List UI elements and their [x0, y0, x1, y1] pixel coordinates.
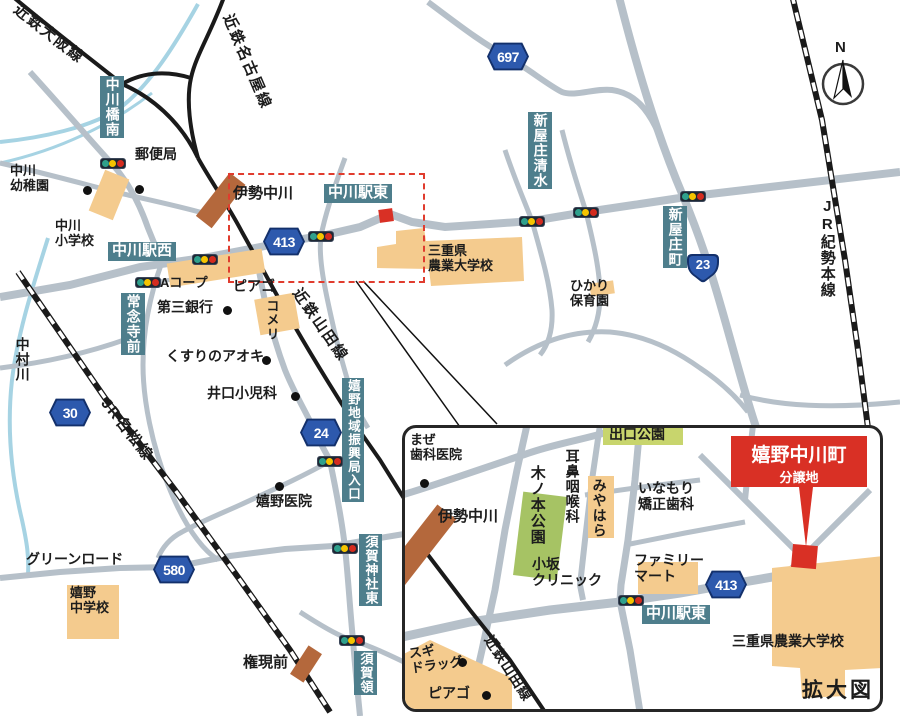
traffic-signal-icon [308, 231, 334, 242]
poi-dot-yochien [83, 186, 92, 195]
traffic-signal-icon [317, 456, 343, 467]
poi-mie-nogyo-daigakko: 三重県 農業大学校 [428, 244, 493, 273]
traffic-signal-icon [618, 595, 644, 606]
traffic-signal-icon [135, 277, 161, 288]
inset-poi-dot-sugi-drug [458, 658, 467, 667]
inset-poi-ise-nakagawa: 伊勢中川 [438, 509, 498, 526]
traffic-signal-icon [192, 254, 218, 265]
poi-piago: ピアゴ [233, 279, 275, 295]
inset-poi-dot-piago [482, 691, 491, 700]
sign-ureshino-chiiki-shinkokyoku-iriguchi: 嬉野地域振興局入口 [342, 378, 364, 502]
poi-nakagawa-shogakko: 中川 小学校 [55, 219, 94, 248]
inset-route-badge-413: 413 [705, 570, 747, 599]
inset-poi-mie-nogyo-daigakko: 三重県農業大学校 [732, 634, 844, 650]
inset-poi-inamori-kyosei-shika: いなもり 矯正歯科 [638, 481, 694, 512]
inset-poi-jibi-inkoka: 耳鼻咽喉科 [564, 449, 580, 524]
poi-iguchi-shonika: 井口小児科 [207, 386, 277, 402]
route-badge-580: 580 [153, 555, 195, 584]
poi-dot-yubinkyoku [135, 185, 144, 194]
map-canvas: 近鉄大阪線 近鉄名古屋線 近鉄山田線 JR名松線 JR紀勢本線 N 中川橋南 中… [0, 0, 900, 716]
route-badge-30: 30 [49, 398, 91, 427]
site-label-line2: 分譲地 [731, 467, 867, 486]
poi-dot-daisan-ginko [223, 306, 232, 315]
site-label-line1: 嬉野中川町 [731, 440, 867, 467]
rail-label-jr-kisei: JR紀勢本線 [818, 198, 835, 298]
poi-gongen-mae: 権現前 [243, 655, 288, 672]
poi-kusuri-no-aoki: くすりのアオキ [166, 349, 264, 365]
poi-green-road: グリーンロード [26, 552, 123, 568]
poi-ise-nakagawa: 伊勢中川 [233, 186, 293, 203]
poi-ureshino-chugakko: 嬉野 中学校 [70, 586, 109, 615]
inset-sign-nakagawa-eki-higashi: 中川駅東 [642, 605, 710, 624]
sign-shinyasho-shimizu: 新屋庄清水 [528, 112, 552, 189]
poi-komeri: コメリ [264, 299, 279, 341]
poi-hikari-hoikuen: ひかり 保育園 [570, 279, 609, 308]
poi-dot-kusuri-no-aoki [262, 356, 271, 365]
enlarged-map-inset: まぜ 歯科医院 伊勢中川 木ノ本公園 耳鼻咽喉科 みやはら 出口公園 いなもり … [402, 425, 883, 712]
sign-suga-ryo: 須賀領 [354, 651, 377, 695]
sign-suga-jinja-higashi: 須賀神社東 [359, 534, 382, 606]
compass-north-label: N [835, 40, 846, 57]
inset-poi-piago: ピアゴ [428, 686, 470, 702]
inset-poi-kinomoto-koen: 木ノ本公園 [528, 465, 545, 545]
traffic-signal-icon [100, 158, 126, 169]
route-badge-697: 697 [487, 42, 529, 71]
route-badge-413: 413 [263, 227, 305, 256]
poi-dot-ureshino-iin [275, 482, 284, 491]
sign-nakagawa-eki-higashi: 中川駅東 [324, 184, 392, 203]
svg-text:23: 23 [696, 257, 710, 272]
inset-poi-family-mart: ファミリー マート [634, 553, 704, 584]
traffic-signal-icon [519, 216, 545, 227]
inset-poi-deguchi-koen: 出口公園 [609, 427, 665, 443]
poi-ureshino-iin: 嬉野医院 [256, 494, 312, 510]
inset-poi-maze-shika: まぜ 歯科医院 [410, 433, 462, 462]
traffic-signal-icon [332, 543, 358, 554]
poi-nakagawa-yochien: 中川 幼稚園 [10, 164, 49, 193]
route-badge-23: 23 [685, 250, 721, 285]
traffic-signal-icon [573, 207, 599, 218]
sign-jonenji-mae: 常念寺前 [121, 293, 145, 355]
poi-dot-iguchi-shonika [291, 392, 300, 401]
inset-kakudaizu-label: 拡大図 [802, 679, 874, 703]
poi-a-coop: Aコープ [160, 276, 208, 291]
site-label: 嬉野中川町 分譲地 [731, 436, 867, 487]
traffic-signal-icon [680, 191, 706, 202]
poi-yubinkyoku: 郵便局 [135, 147, 177, 163]
inset-poi-miyahara: みやはら [591, 478, 607, 538]
inset-poi-dot-maze-shika [420, 479, 429, 488]
poi-daisan-ginko: 第三銀行 [157, 300, 213, 316]
compass-icon [823, 60, 863, 104]
inset-poi-kosaka-clinic: 小坂 クリニック [532, 557, 602, 588]
sign-nakagawabashi-minami: 中川橋南 [100, 76, 124, 138]
sign-shinyasho-cho: 新屋庄町 [663, 206, 687, 268]
traffic-signal-icon [339, 635, 365, 646]
sign-nakagawa-eki-nishi: 中川駅西 [108, 242, 176, 261]
route-badge-24: 24 [300, 418, 342, 447]
poi-nakamura-gawa: 中村川 [14, 337, 30, 382]
